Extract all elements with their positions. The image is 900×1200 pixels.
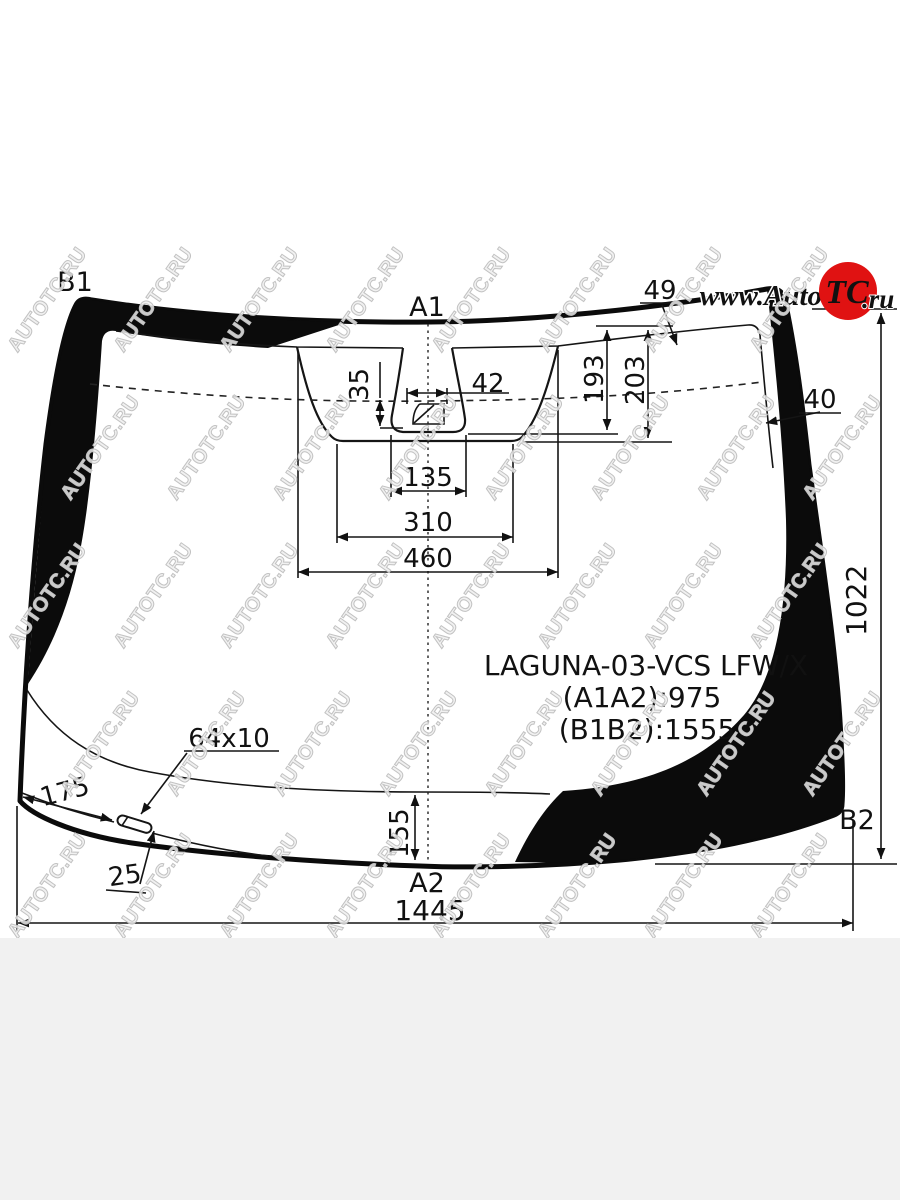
- dim-175-label: 175: [37, 771, 93, 813]
- horizontal-centerline: [90, 382, 762, 401]
- dim-25-label: 25: [106, 859, 143, 893]
- ceramic-band-right: [515, 289, 843, 863]
- dim-49-label: 49: [643, 276, 676, 306]
- windshield-diagram: B1 A1 A2 B2 49 40 42 35 193 203 135 310 …: [0, 0, 900, 938]
- dim-1445-label: 1445: [394, 894, 465, 927]
- dim-203-label: 203: [621, 355, 651, 405]
- moulding-strip: [116, 814, 152, 834]
- footer-blank-area: [0, 938, 900, 1200]
- label-b2: B2: [839, 805, 875, 836]
- dim-310-label: 310: [403, 508, 453, 538]
- site-logo[interactable]: www.Auto TC .ru: [700, 262, 895, 320]
- label-a1: A1: [409, 292, 445, 323]
- part-b1b2: (B1B2):1555: [559, 713, 736, 746]
- dim-42-label: 42: [471, 369, 504, 399]
- diagram-stage: B1 A1 A2 B2 49 40 42 35 193 203 135 310 …: [0, 0, 900, 938]
- dim-460-label: 460: [403, 544, 453, 574]
- dim-135-label: 135: [403, 463, 453, 493]
- logo-text-suffix: .ru: [862, 284, 894, 314]
- logo-text-prefix: www.Auto: [700, 280, 822, 312]
- dim-193-label: 193: [580, 354, 610, 404]
- dim-40-label: 40: [803, 385, 836, 415]
- rain-sensor: [413, 404, 444, 424]
- dim-35-label: 35: [345, 368, 375, 401]
- part-a1a2: (A1A2):975: [563, 681, 722, 714]
- dim-1022-label: 1022: [840, 565, 873, 636]
- label-b1: B1: [57, 267, 93, 298]
- part-model: LAGUNA-03-VCS LFW/X: [484, 649, 808, 682]
- dim-64x10-label: 64x10: [188, 724, 270, 754]
- dim-155-label: 155: [385, 808, 415, 858]
